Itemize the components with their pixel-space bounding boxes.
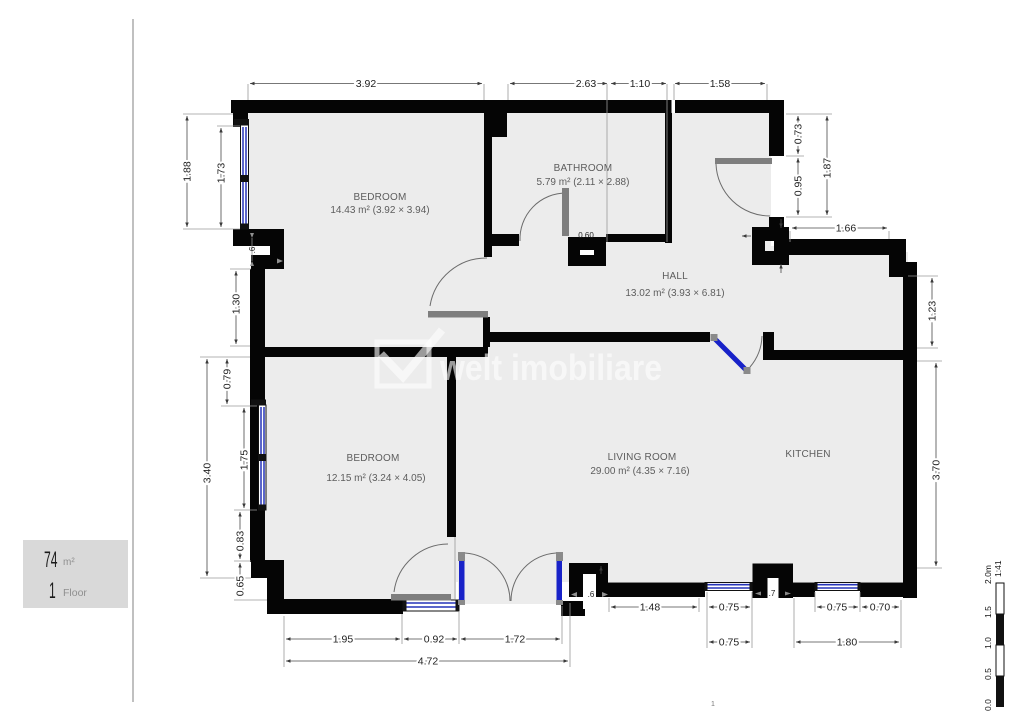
svg-text:0.95: 0.95 — [793, 176, 805, 197]
svg-text:0.60: 0.60 — [578, 231, 594, 240]
svg-text:4.72: 4.72 — [418, 656, 439, 668]
svg-text:.6: .6 — [248, 246, 257, 253]
svg-text:1.87: 1.87 — [822, 158, 834, 179]
svg-text:1.30: 1.30 — [231, 294, 243, 315]
svg-text:.6: .6 — [588, 590, 595, 599]
svg-text:2.63: 2.63 — [576, 78, 597, 90]
svg-text:1.72: 1.72 — [505, 634, 526, 646]
svg-text:1.0: 1.0 — [983, 637, 993, 649]
svg-text:13.02 m² (3.93 × 6.81): 13.02 m² (3.93 × 6.81) — [625, 288, 724, 299]
svg-text:2.0m: 2.0m — [983, 565, 993, 584]
svg-text:0.70: 0.70 — [870, 602, 891, 614]
svg-text:1.66: 1.66 — [836, 223, 857, 235]
svg-text:3.92: 3.92 — [356, 78, 377, 90]
svg-text:1.48: 1.48 — [640, 602, 661, 614]
svg-text:1: 1 — [711, 701, 715, 708]
svg-text:0.65: 0.65 — [235, 576, 247, 597]
svg-text:HALL: HALL — [662, 271, 688, 282]
svg-text:0.0: 0.0 — [983, 699, 993, 711]
svg-text:.7: .7 — [769, 589, 776, 598]
svg-text:1:41: 1:41 — [993, 560, 1003, 577]
svg-text:0.73: 0.73 — [793, 124, 805, 145]
svg-text:14.43 m² (3.92 × 3.94): 14.43 m² (3.92 × 3.94) — [330, 205, 429, 216]
svg-text:1.75: 1.75 — [239, 450, 251, 471]
svg-text:LIVING ROOM: LIVING ROOM — [608, 452, 677, 463]
svg-text:3.40: 3.40 — [202, 463, 214, 484]
svg-text:1.10: 1.10 — [630, 78, 651, 90]
svg-text:1.80: 1.80 — [837, 637, 858, 649]
svg-text:74: 74 — [44, 547, 58, 572]
svg-text:Floor: Floor — [63, 587, 87, 599]
svg-text:0.83: 0.83 — [235, 531, 247, 552]
svg-text:3.70: 3.70 — [931, 460, 943, 481]
svg-text:1.5: 1.5 — [983, 606, 993, 618]
svg-text:1: 1 — [49, 578, 56, 603]
svg-text:0.75: 0.75 — [719, 602, 740, 614]
svg-text:BATHROOM: BATHROOM — [554, 163, 613, 174]
svg-text:0.5: 0.5 — [983, 668, 993, 680]
svg-text:0.79: 0.79 — [222, 369, 234, 390]
svg-text:1.23: 1.23 — [927, 301, 939, 322]
svg-text:5.79 m² (2.11 × 2.88): 5.79 m² (2.11 × 2.88) — [537, 177, 630, 188]
svg-text:0.75: 0.75 — [719, 637, 740, 649]
svg-text:29.00 m² (4.35 × 7.16): 29.00 m² (4.35 × 7.16) — [590, 466, 689, 477]
svg-text:12.15 m² (3.24 × 4.05): 12.15 m² (3.24 × 4.05) — [326, 473, 425, 484]
svg-text:1.95: 1.95 — [333, 634, 354, 646]
svg-text:BEDROOM: BEDROOM — [353, 192, 406, 203]
svg-text:m²: m² — [63, 557, 75, 568]
svg-text:1.73: 1.73 — [216, 163, 228, 184]
svg-text:0.75: 0.75 — [827, 602, 848, 614]
svg-text:BEDROOM: BEDROOM — [346, 453, 399, 464]
svg-text:1.58: 1.58 — [710, 78, 731, 90]
svg-text:0.92: 0.92 — [424, 634, 445, 646]
svg-text:1.88: 1.88 — [182, 161, 194, 182]
svg-text:welt imobiliare: welt imobiliare — [439, 347, 662, 388]
svg-text:KITCHEN: KITCHEN — [785, 449, 830, 460]
